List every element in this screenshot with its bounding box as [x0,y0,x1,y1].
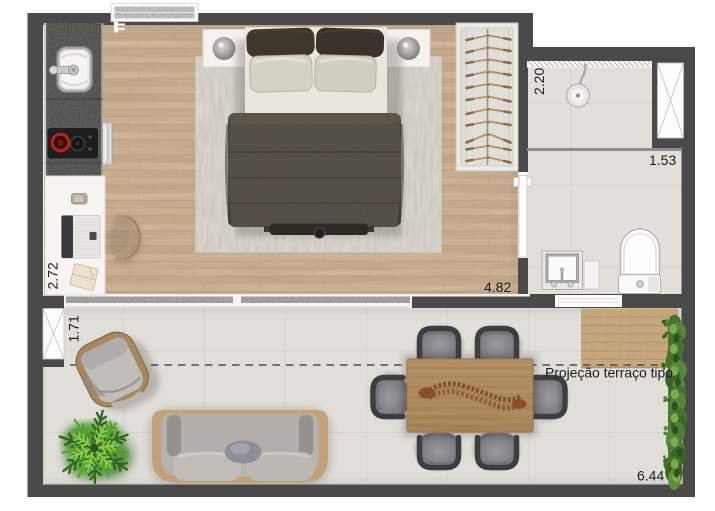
svg-text:2.20: 2.20 [531,68,547,95]
svg-text:1.53: 1.53 [649,152,676,168]
svg-text:1.71: 1.71 [66,315,82,342]
svg-text:6.44: 6.44 [637,468,664,484]
svg-text:4.82: 4.82 [484,279,511,295]
svg-text:2.72: 2.72 [45,262,61,289]
svg-text:Projeção terraço tipo: Projeção terraço tipo [545,365,673,381]
